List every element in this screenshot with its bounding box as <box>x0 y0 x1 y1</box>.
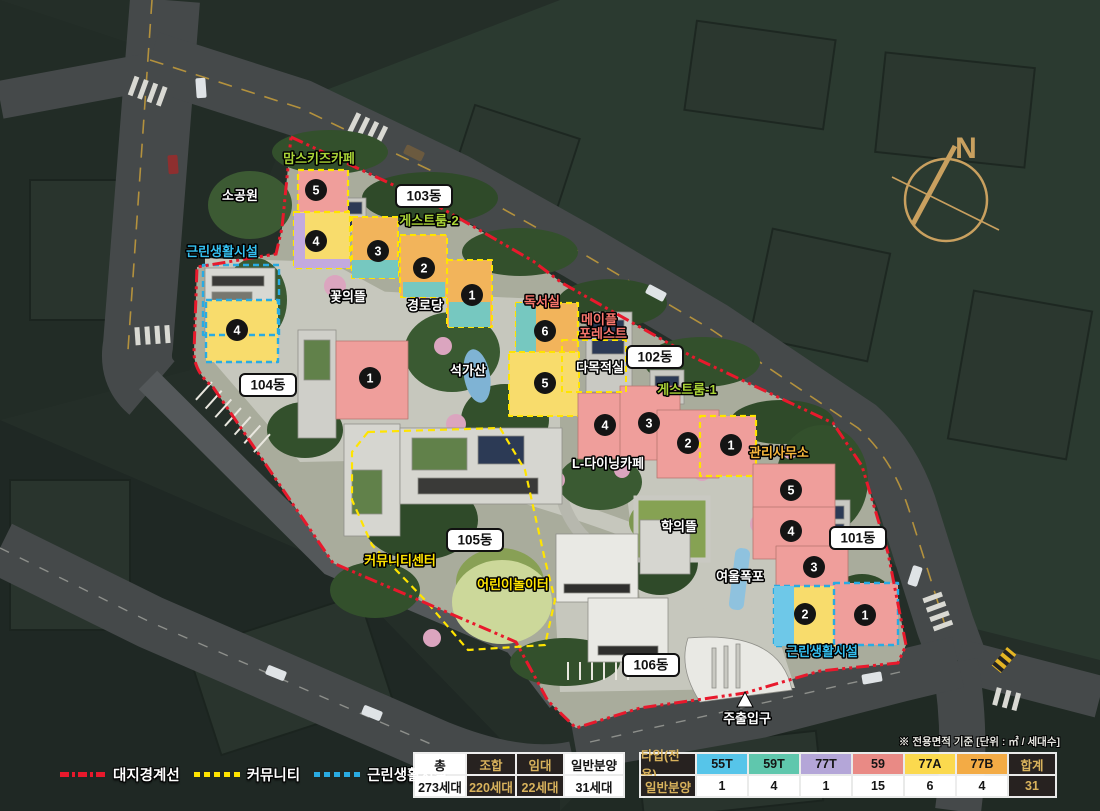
svg-text:5: 5 <box>542 377 549 391</box>
type-row2-header: 일반분양 <box>641 776 695 796</box>
label-children-playground: 어린이놀이터 <box>477 577 549 592</box>
unit-circle: 1 <box>720 434 742 456</box>
summary-sale-value: 31세대 <box>565 776 623 796</box>
svg-text:102동: 102동 <box>638 350 673 365</box>
legend-community-label: 커뮤니티 <box>247 764 300 785</box>
site-boundary-line-icon <box>60 772 106 777</box>
unit-circle: 1 <box>461 284 483 306</box>
label-hakui-garden: 학의뜰 <box>661 519 697 534</box>
type-59t-count: 4 <box>749 776 799 796</box>
svg-text:101동: 101동 <box>841 531 876 546</box>
svg-text:1: 1 <box>862 609 869 623</box>
label-neighborhood-facility-left: 근린생활시설 <box>186 244 258 259</box>
label-maple-forest-2: 포레스트 <box>579 326 627 341</box>
unit-type-table: 타입(전용) 55T 59T 77T 59 77A 77B 합계 일반분양 1 … <box>639 752 1057 798</box>
summary-total-value: 273세대 <box>415 776 465 796</box>
unit-circle: 4 <box>594 414 616 436</box>
unit-circle: 3 <box>367 240 389 262</box>
label-neighborhood-facility-right: 근린생활시설 <box>786 644 858 659</box>
site-plan-canvas: N 5 4 3 2 1 6 5 4 3 2 1 5 4 3 2 1 4 1 10… <box>0 0 1100 811</box>
label-guest-room-2: 게스트룸-2 <box>399 213 458 228</box>
summary-sale-header: 일반분양 <box>565 754 623 774</box>
summary-rental-value: 22세대 <box>517 776 563 796</box>
svg-text:1: 1 <box>367 372 374 386</box>
type-55t-count: 1 <box>697 776 747 796</box>
type-77a-count: 6 <box>905 776 955 796</box>
type-total-value: 31 <box>1009 776 1055 796</box>
unit-basis-note: ※ 전용면적 기준 [단위 : ㎡ / 세대수] <box>899 735 1060 748</box>
unit-circle: 3 <box>803 556 825 578</box>
label-mgmt-office: 관리사무소 <box>749 445 809 460</box>
label-multipurpose-room: 다목적실 <box>576 360 624 375</box>
summary-rental-header: 임대 <box>517 754 563 774</box>
type-55t-header: 55T <box>697 754 747 774</box>
label-guest-room-1: 게스트룸-1 <box>657 382 716 397</box>
unit-circle: 4 <box>305 230 327 252</box>
summary-union-header: 조합 <box>467 754 515 774</box>
type-59-count: 15 <box>853 776 903 796</box>
svg-text:4: 4 <box>602 419 609 433</box>
svg-text:2: 2 <box>421 262 428 276</box>
dong-label-106: 106동 <box>623 654 679 676</box>
svg-text:1: 1 <box>728 439 735 453</box>
compass-n-label: N <box>955 132 977 165</box>
svg-text:5: 5 <box>313 184 320 198</box>
unit-circle: 2 <box>413 257 435 279</box>
type-77b-count: 4 <box>957 776 1007 796</box>
summary-union-value: 220세대 <box>467 776 515 796</box>
legend: 대지경계선 커뮤니티 근린생활시설 <box>60 764 447 785</box>
svg-text:2: 2 <box>685 437 692 451</box>
svg-text:2: 2 <box>802 608 809 622</box>
type-77a-header: 77A <box>905 754 955 774</box>
legend-site-boundary-label: 대지경계선 <box>113 764 180 785</box>
type-59t-header: 59T <box>749 754 799 774</box>
svg-text:3: 3 <box>811 561 818 575</box>
unit-circle: 5 <box>534 372 556 394</box>
label-maple-forest-1: 메이플 <box>581 312 617 327</box>
svg-text:1: 1 <box>469 289 476 303</box>
dong-label-104: 104동 <box>240 374 296 396</box>
summary-total-header: 총 <box>415 754 465 774</box>
unit-circle: 4 <box>226 319 248 341</box>
svg-text:3: 3 <box>646 417 653 431</box>
unit-circle: 5 <box>780 479 802 501</box>
label-yeoul-waterfall: 여울폭포 <box>716 569 764 584</box>
label-main-entrance: 주출입구 <box>723 711 771 726</box>
unit-circle: 6 <box>534 320 556 342</box>
unit-circle: 1 <box>359 367 381 389</box>
dong-label-101: 101동 <box>830 527 886 549</box>
legend-site-boundary: 대지경계선 <box>60 764 180 785</box>
svg-text:103동: 103동 <box>407 189 442 204</box>
type-77t-count: 1 <box>801 776 851 796</box>
type-total-header: 합계 <box>1009 754 1055 774</box>
label-community-center: 커뮤니티센터 <box>364 553 436 568</box>
label-moms-kids-cafe: 맘스키즈카페 <box>283 151 355 166</box>
unit-circle: 5 <box>305 179 327 201</box>
type-59-header: 59 <box>853 754 903 774</box>
unit-circle: 2 <box>677 432 699 454</box>
dong-label-102: 102동 <box>627 346 683 368</box>
svg-text:4: 4 <box>313 235 320 249</box>
label-stone-garden: 석가산 <box>450 363 486 378</box>
svg-text:6: 6 <box>542 325 549 339</box>
svg-text:3: 3 <box>375 245 382 259</box>
svg-text:104동: 104동 <box>251 378 286 393</box>
type-77t-header: 77T <box>801 754 851 774</box>
unit-circle: 3 <box>638 412 660 434</box>
svg-text:4: 4 <box>234 324 241 338</box>
label-l-dining-cafe: L-다이닝카페 <box>572 456 644 471</box>
svg-text:106동: 106동 <box>634 658 669 673</box>
household-summary-table: 총 조합 임대 일반분양 273세대 220세대 22세대 31세대 <box>413 752 625 798</box>
label-senior-center: 경로당 <box>407 298 443 313</box>
neighborhood-facility-line-icon <box>314 772 360 777</box>
label-flower-garden: 꽃의뜰 <box>330 289 366 304</box>
legend-community: 커뮤니티 <box>194 764 300 785</box>
svg-text:5: 5 <box>788 484 795 498</box>
community-line-icon <box>194 772 240 777</box>
type-77b-header: 77B <box>957 754 1007 774</box>
unit-circle: 2 <box>794 603 816 625</box>
type-table-header: 타입(전용) <box>641 754 695 774</box>
svg-text:105동: 105동 <box>458 533 493 548</box>
site-plan-screenshot: N 5 4 3 2 1 6 5 4 3 2 1 5 4 3 2 1 4 1 10… <box>0 0 1100 811</box>
unit-circle: 4 <box>780 520 802 542</box>
label-reading-room: 독서실 <box>524 294 560 309</box>
label-small-park: 소공원 <box>222 188 258 203</box>
dong-label-103: 103동 <box>396 185 452 207</box>
unit-circle: 1 <box>854 604 876 626</box>
svg-text:4: 4 <box>788 525 795 539</box>
dong-label-105: 105동 <box>447 529 503 551</box>
